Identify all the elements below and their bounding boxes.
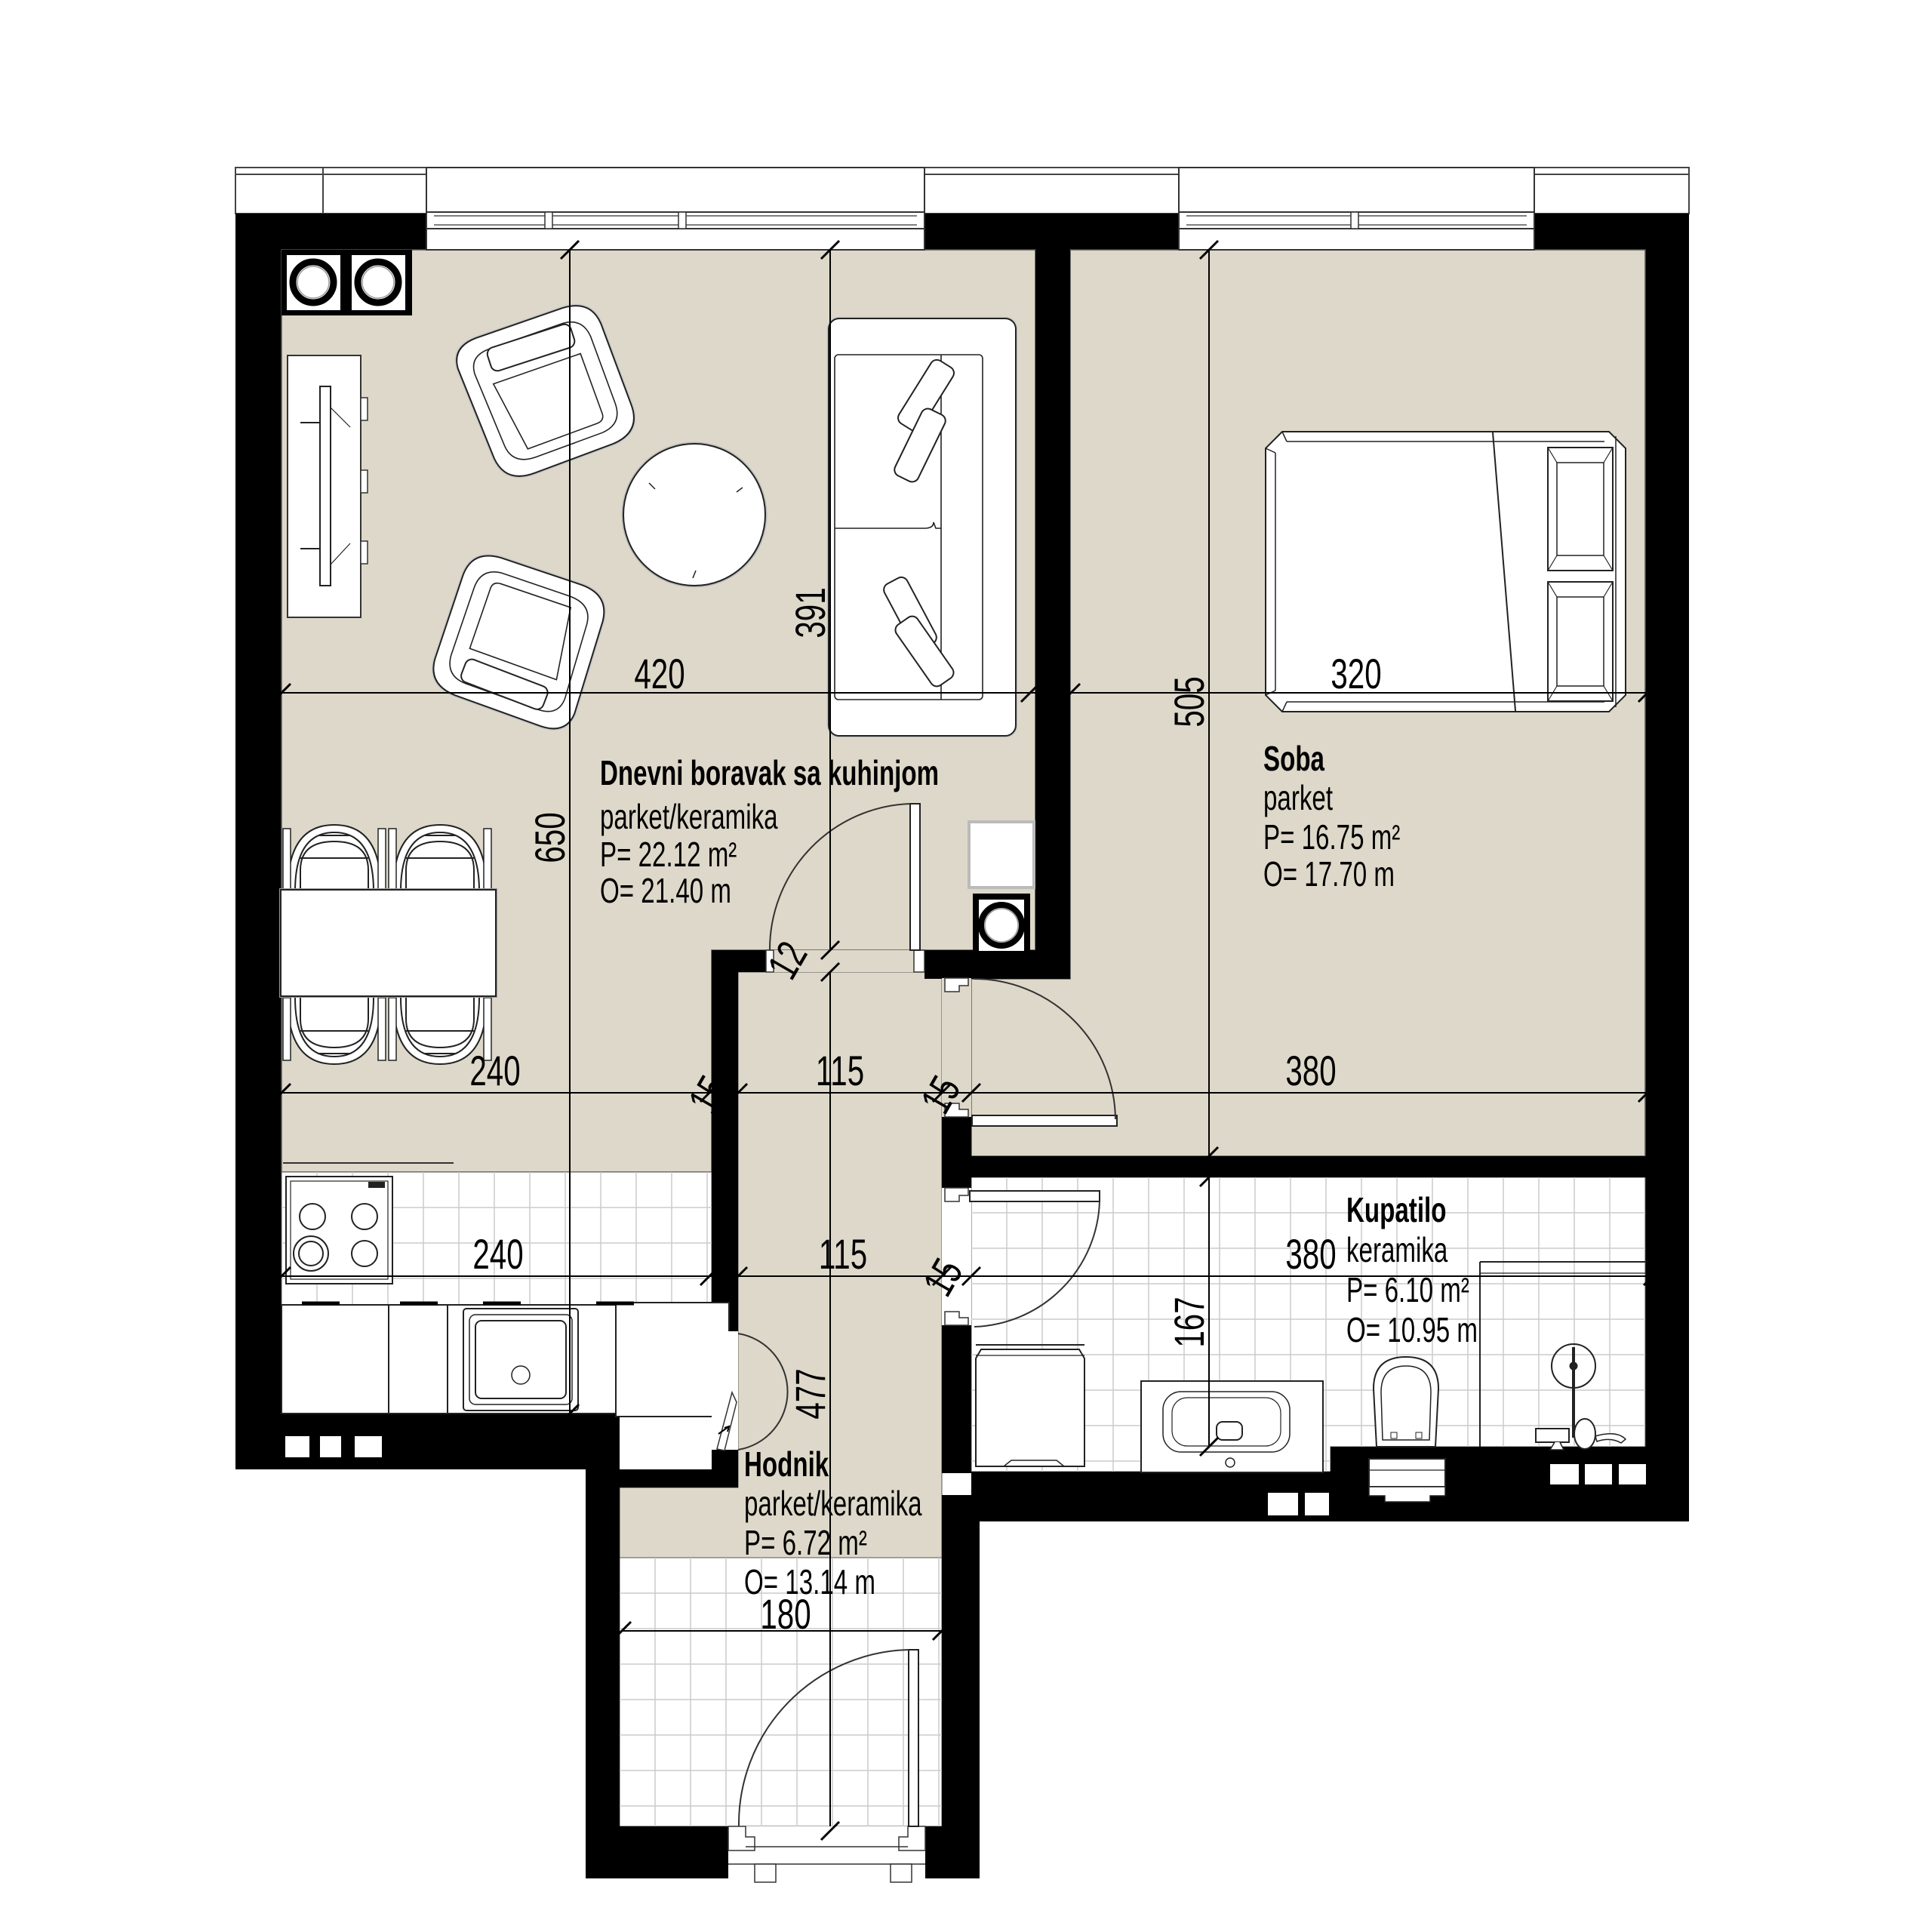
svg-text:650: 650 bbox=[528, 812, 574, 863]
svg-text:P= 6.72 m²: P= 6.72 m² bbox=[744, 1524, 867, 1562]
svg-text:O= 17.70 m: O= 17.70 m bbox=[1263, 856, 1395, 894]
svg-text:167: 167 bbox=[1167, 1297, 1214, 1347]
svg-text:391: 391 bbox=[788, 587, 835, 638]
svg-text:O= 10.95 m: O= 10.95 m bbox=[1346, 1312, 1478, 1349]
svg-text:Hodnik: Hodnik bbox=[744, 1446, 829, 1484]
svg-text:Dnevni boravak sa kuhinjom: Dnevni boravak sa kuhinjom bbox=[600, 755, 939, 792]
svg-text:320: 320 bbox=[1331, 651, 1381, 698]
svg-text:380: 380 bbox=[1285, 1232, 1336, 1278]
svg-text:115: 115 bbox=[819, 1232, 867, 1278]
svg-text:P= 16.75 m²: P= 16.75 m² bbox=[1263, 819, 1400, 857]
svg-text:parket: parket bbox=[1263, 780, 1333, 817]
svg-text:240: 240 bbox=[469, 1048, 520, 1095]
svg-text:420: 420 bbox=[634, 651, 685, 698]
svg-text:parket/keramika: parket/keramika bbox=[744, 1485, 922, 1523]
svg-text:O= 13.14 m: O= 13.14 m bbox=[744, 1564, 875, 1601]
svg-text:505: 505 bbox=[1167, 676, 1214, 727]
svg-text:keramika: keramika bbox=[1346, 1232, 1448, 1269]
svg-text:240: 240 bbox=[472, 1232, 523, 1278]
svg-text:P= 6.10 m²: P= 6.10 m² bbox=[1346, 1272, 1469, 1309]
svg-text:parket/keramika: parket/keramika bbox=[600, 798, 778, 836]
svg-text:O= 21.40 m: O= 21.40 m bbox=[600, 872, 731, 910]
svg-text:115: 115 bbox=[816, 1048, 864, 1095]
svg-text:380: 380 bbox=[1285, 1048, 1336, 1095]
svg-text:P= 22.12 m²: P= 22.12 m² bbox=[600, 836, 737, 874]
svg-text:Soba: Soba bbox=[1263, 740, 1325, 778]
svg-text:477: 477 bbox=[788, 1368, 835, 1419]
svg-text:Kupatilo: Kupatilo bbox=[1346, 1192, 1446, 1229]
